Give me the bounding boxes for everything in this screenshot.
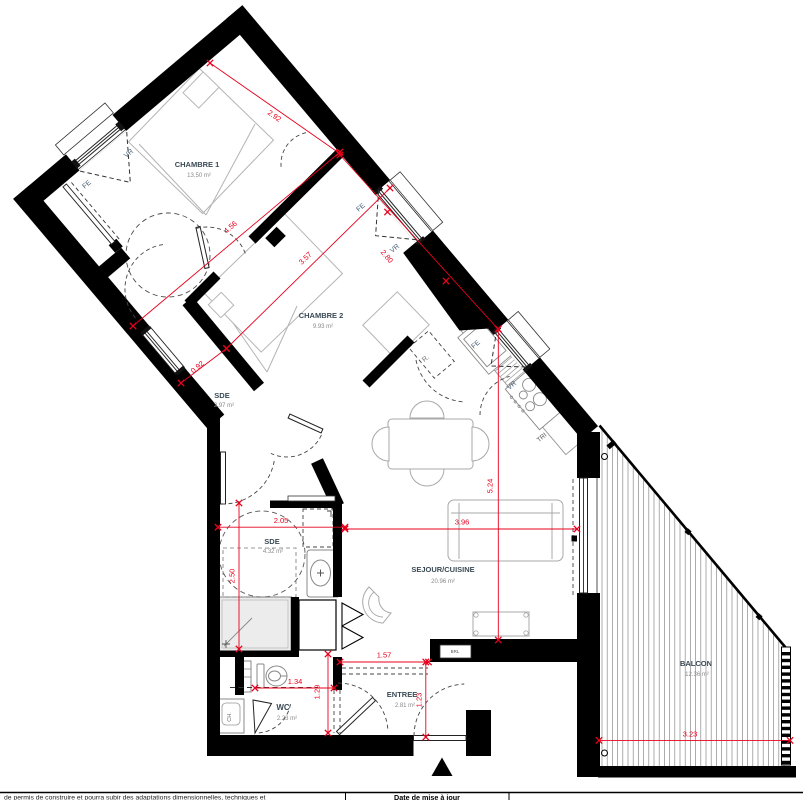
svg-text:13.50 m²: 13.50 m² (187, 173, 211, 179)
svg-text:2.81 m²: 2.81 m² (395, 703, 415, 709)
svg-text:2.50: 2.50 (228, 569, 237, 584)
svg-text:4.32 m²: 4.32 m² (263, 549, 283, 555)
svg-text:1.57: 1.57 (377, 651, 392, 660)
svg-text:BRL: BRL (451, 649, 460, 654)
svg-text:20.96 m²: 20.96 m² (431, 579, 455, 585)
svg-text:SDE: SDE (264, 537, 279, 546)
svg-text:2.97 m²: 2.97 m² (214, 403, 234, 409)
svg-text:CHAMBRE 2: CHAMBRE 2 (299, 311, 344, 320)
svg-text:1.34: 1.34 (288, 677, 303, 686)
svg-text:9.93 m²: 9.93 m² (313, 324, 333, 330)
svg-text:SDE: SDE (214, 391, 229, 400)
svg-text:2.05: 2.05 (274, 516, 289, 525)
svg-text:1.29: 1.29 (313, 685, 322, 700)
svg-text:SEJOUR/CUISINE: SEJOUR/CUISINE (411, 565, 474, 574)
svg-text:WC: WC (276, 703, 290, 712)
svg-text:3.23: 3.23 (683, 730, 698, 739)
svg-text:BALCON: BALCON (680, 659, 712, 668)
svg-text:3.96: 3.96 (455, 518, 470, 527)
svg-text:CH.: CH. (227, 712, 233, 722)
svg-text:12.36 m²: 12.36 m² (685, 672, 709, 678)
svg-text:2.23 m²: 2.23 m² (277, 716, 297, 722)
svg-text:Date de mise à jour: Date de mise à jour (394, 793, 460, 800)
svg-text:CHAMBRE 1: CHAMBRE 1 (175, 160, 220, 169)
svg-text:de permis de construire et pou: de permis de construire et pourra subir … (4, 795, 266, 800)
svg-text:ENTREE: ENTREE (387, 690, 417, 699)
svg-text:5.24: 5.24 (486, 479, 495, 494)
